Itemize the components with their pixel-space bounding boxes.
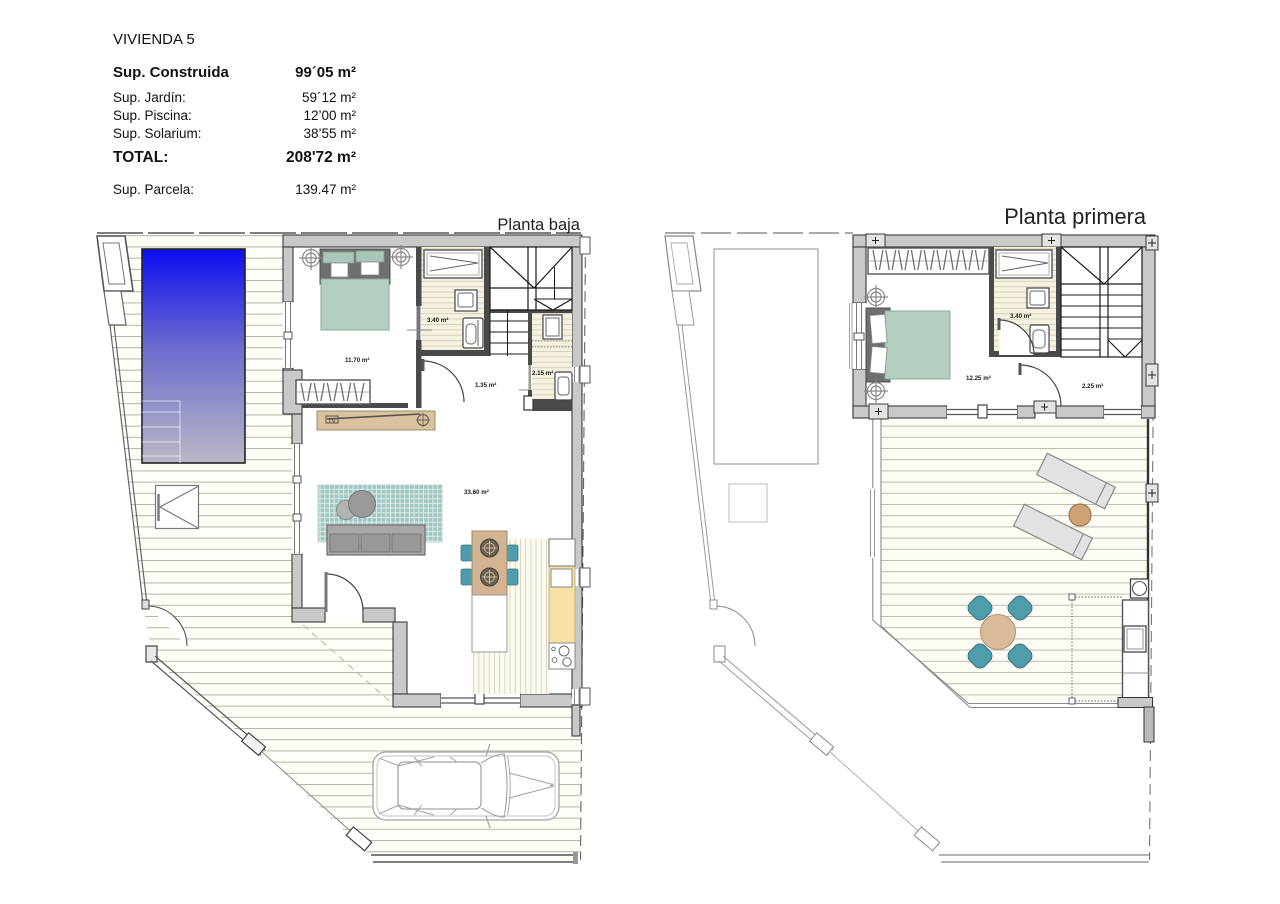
svg-text:Sup. Jardín:: Sup. Jardín: — [113, 90, 186, 105]
svg-text:3.40 m²: 3.40 m² — [1010, 313, 1031, 320]
svg-text:2.15 m²: 2.15 m² — [532, 370, 553, 377]
svg-text:12’00 m²: 12’00 m² — [303, 108, 356, 123]
svg-text:VIVIENDA 5: VIVIENDA 5 — [113, 31, 195, 48]
svg-text:208'72 m²: 208'72 m² — [286, 149, 356, 166]
svg-text:Sup. Construida: Sup. Construida — [113, 64, 229, 81]
svg-text:139.47 m²: 139.47 m² — [295, 182, 356, 197]
svg-text:38’55 m²: 38’55 m² — [303, 126, 356, 141]
svg-text:Sup. Parcela:: Sup. Parcela: — [113, 182, 194, 197]
svg-text:3.40 m²: 3.40 m² — [427, 317, 448, 324]
svg-text:Sup. Piscina:: Sup. Piscina: — [113, 108, 192, 123]
svg-text:2.25 m²: 2.25 m² — [1082, 383, 1103, 390]
svg-text:Sup. Solarium:: Sup. Solarium: — [113, 126, 202, 141]
svg-text:12.25 m²: 12.25 m² — [966, 375, 991, 382]
svg-text:TOTAL:: TOTAL: — [113, 149, 168, 166]
svg-text:33.60 m²: 33.60 m² — [464, 489, 489, 496]
svg-text:Planta baja: Planta baja — [497, 216, 580, 234]
svg-text:99´05 m²: 99´05 m² — [295, 64, 356, 81]
svg-text:11.70 m²: 11.70 m² — [345, 357, 369, 364]
svg-text:Planta primera: Planta primera — [1004, 204, 1147, 229]
svg-text:59´12 m²: 59´12 m² — [302, 90, 357, 105]
svg-text:TV: TV — [328, 419, 336, 425]
svg-text:1.35 m²: 1.35 m² — [475, 382, 496, 389]
